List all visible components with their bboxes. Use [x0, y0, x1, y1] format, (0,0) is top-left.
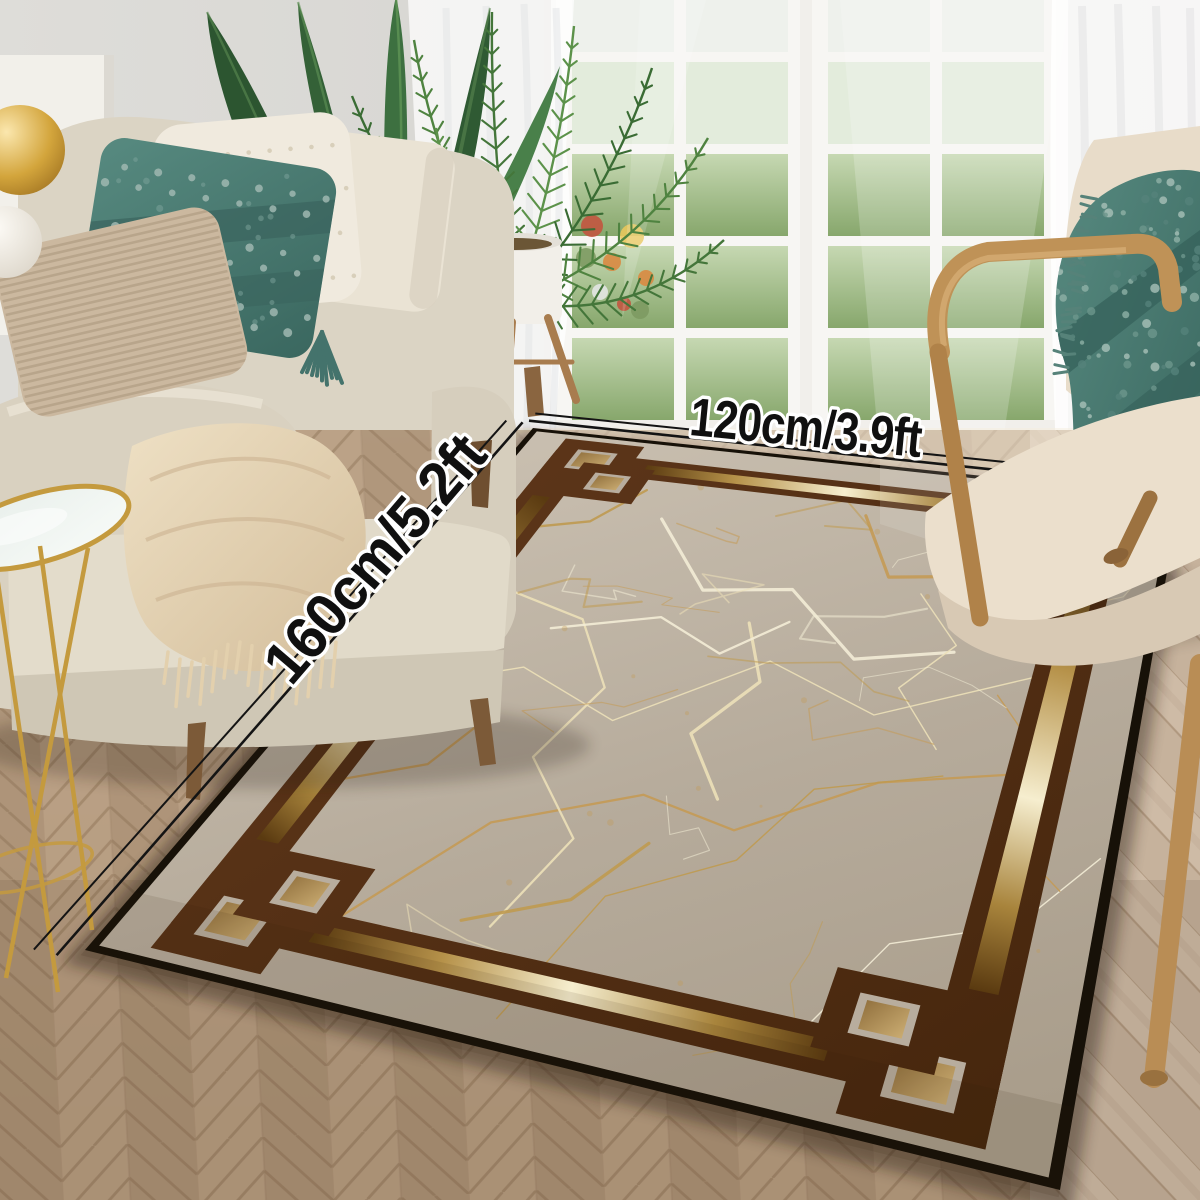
- door-pane: [686, 62, 788, 144]
- living-room-product-photo: 120cm/3.9ft 160cm/5.2ft: [0, 0, 1200, 1200]
- door-pane: [686, 154, 788, 236]
- door-pane: [572, 338, 674, 420]
